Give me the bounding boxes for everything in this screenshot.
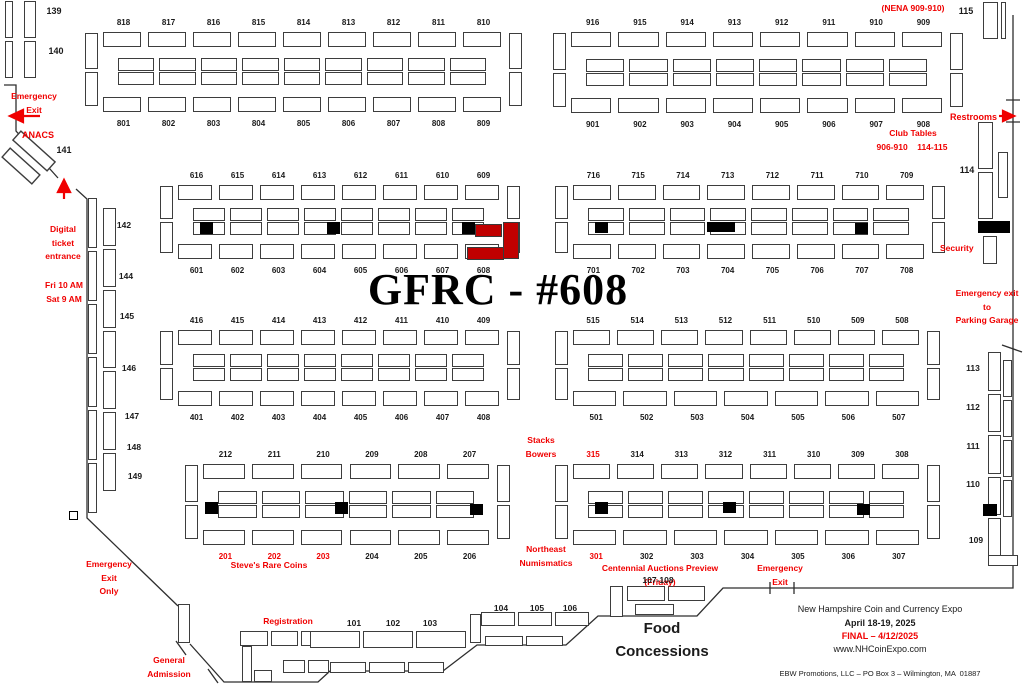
booth-rect [555, 186, 568, 219]
booth-label-610: 610 [436, 171, 449, 180]
booth-rect [408, 662, 444, 673]
booth-rect [668, 505, 703, 518]
booth-rect [829, 368, 864, 381]
booth-label-501: 501 [590, 413, 603, 422]
booth-label-614: 614 [272, 171, 285, 180]
digital-entrance-label: Digital ticket entrance [34, 223, 92, 264]
booth-rect [629, 222, 665, 235]
booth-rect [178, 391, 212, 406]
emergency-exit-left: Emergency Exit [6, 90, 62, 117]
booth-rect [447, 464, 489, 479]
booth-label-511: 511 [763, 316, 776, 325]
booth-rect [670, 222, 706, 235]
booth-label-913: 913 [728, 18, 741, 27]
booth-label-410: 410 [436, 316, 449, 325]
booth-rect [855, 98, 895, 113]
booth-rect [749, 368, 784, 381]
parking-exit-label: Emergency exit to Parking Garage [948, 287, 1026, 328]
booth-rect [160, 368, 173, 400]
label-112: 112 [961, 401, 985, 415]
label-101: 101 [340, 617, 368, 631]
steves-rare-coins-label: Steve's Rare Coins [222, 559, 316, 573]
booth-rect [301, 464, 343, 479]
label-148: 148 [122, 441, 146, 455]
booth-rect [807, 98, 847, 113]
booth-rect [829, 354, 864, 367]
pillar-block [327, 222, 340, 234]
booth-rect [794, 330, 831, 345]
booth-rect [724, 530, 767, 545]
booth-rect [902, 98, 942, 113]
booth-rect [869, 491, 904, 504]
booth-rect [1003, 360, 1012, 397]
booth-label-810: 810 [477, 18, 490, 27]
booth-label-514: 514 [631, 316, 644, 325]
booth-rect [555, 465, 568, 502]
booth-rect [392, 505, 431, 518]
booth-label-411: 411 [395, 316, 408, 325]
booth-label-407: 407 [436, 413, 449, 422]
booth-rect [588, 208, 624, 221]
booth-rect [635, 604, 674, 615]
booth-rect [573, 391, 616, 406]
booth-label-809: 809 [477, 119, 490, 128]
hours-label: Fri 10 AM Sat 9 AM [36, 279, 92, 306]
booth-rect [219, 391, 253, 406]
label-139: 139 [40, 4, 68, 18]
booth-rect [573, 330, 610, 345]
label-109: 109 [964, 534, 988, 548]
booth-rect [628, 368, 663, 381]
island-400: 4164154144134124114104094014024034044054… [160, 328, 520, 408]
booth-label-616: 616 [190, 171, 203, 180]
booth-rect [463, 97, 501, 112]
booth-rect [301, 530, 343, 545]
booth-rect [341, 222, 373, 235]
booth-rect [308, 660, 330, 673]
club-tables-label: Club Tables [868, 127, 958, 141]
highlighted-booth-608 [503, 222, 519, 259]
booth-rect [882, 464, 919, 479]
booth-rect [301, 330, 335, 345]
island-300: 3153143133123113103093083013023033043053… [555, 462, 940, 547]
booth-label-710: 710 [855, 171, 868, 180]
island-200: 212211210209208207201202203204205206 [185, 462, 510, 547]
booth-label-212: 212 [219, 450, 232, 459]
club-tables-numbers: 906-910 114-115 [860, 141, 964, 155]
booth-rect [716, 73, 754, 86]
booth-label-910: 910 [869, 18, 882, 27]
booth-rect [88, 357, 97, 407]
booth-rect [193, 97, 231, 112]
booth-label-814: 814 [297, 18, 310, 27]
label-105: 105 [523, 602, 551, 616]
booth-rect [829, 491, 864, 504]
booth-rect [88, 410, 97, 460]
booth-rect [586, 73, 624, 86]
booth-rect [668, 491, 703, 504]
booth-rect [998, 152, 1008, 198]
booth-label-713: 713 [721, 171, 734, 180]
island-700: 7167157147137127117107097017027037047057… [555, 183, 945, 261]
booth-rect [759, 59, 797, 72]
booth-label-608: 608 [477, 266, 490, 275]
booth-rect [218, 505, 257, 518]
booth-label-704: 704 [721, 266, 734, 275]
booth-label-609: 609 [477, 171, 490, 180]
booth-rect [159, 58, 195, 71]
booth-rect [88, 463, 97, 513]
booth-label-408: 408 [477, 413, 490, 422]
booth-label-806: 806 [342, 119, 355, 128]
booth-rect [588, 368, 623, 381]
booth-rect [252, 464, 294, 479]
booth-label-708: 708 [900, 266, 913, 275]
booth-rect [674, 530, 717, 545]
booth-label-309: 309 [851, 450, 864, 459]
booth-label-403: 403 [272, 413, 285, 422]
booth-rect [983, 504, 997, 516]
booth-rect [373, 32, 411, 47]
booth-rect [304, 354, 336, 367]
booth-rect [452, 368, 484, 381]
booth-rect [873, 222, 909, 235]
booth-label-304: 304 [741, 552, 754, 561]
booth-rect [342, 330, 376, 345]
booth-rect [553, 33, 566, 70]
booth-label-901: 901 [586, 120, 599, 129]
booth-rect [230, 354, 262, 367]
booth-rect [349, 505, 388, 518]
booth-rect [666, 98, 706, 113]
booth-label-209: 209 [365, 450, 378, 459]
label-149: 149 [123, 470, 147, 484]
booth-rect [825, 530, 868, 545]
booth-rect [670, 208, 706, 221]
booth-rect [260, 330, 294, 345]
booth-label-818: 818 [117, 18, 130, 27]
booth-rect [201, 58, 237, 71]
booth-rect [526, 636, 564, 646]
booth-rect [889, 73, 927, 86]
label-142: 142 [112, 219, 136, 233]
booth-rect [260, 391, 294, 406]
booth-rect [789, 368, 824, 381]
booth-rect [424, 244, 458, 259]
booth-label-812: 812 [387, 18, 400, 27]
booth-rect [618, 32, 658, 47]
pillar-block [200, 222, 213, 234]
booth-label-315: 315 [586, 450, 599, 459]
booth-label-816: 816 [207, 18, 220, 27]
booth-rect [797, 244, 835, 259]
booth-rect [262, 505, 301, 518]
booth-rect [424, 330, 458, 345]
booth-label-203: 203 [316, 552, 329, 561]
booth-rect [193, 32, 231, 47]
booth-label-409: 409 [477, 316, 490, 325]
booth-rect [465, 185, 499, 200]
booth-rect [749, 505, 784, 518]
booth-rect [5, 1, 13, 38]
booth-rect [507, 331, 520, 365]
booth-rect [775, 530, 818, 545]
booth-rect [775, 391, 818, 406]
booth-rect [304, 208, 336, 221]
highlighted-booth-608 [475, 224, 502, 237]
security-label: Security [940, 242, 984, 256]
general-admission-label: General Admission [142, 654, 196, 681]
booth-rect [88, 304, 97, 354]
booth-rect [792, 208, 828, 221]
booth-rect [902, 32, 942, 47]
booth-rect [713, 32, 753, 47]
booth-rect [24, 41, 36, 78]
booth-label-508: 508 [895, 316, 908, 325]
booth-rect [629, 208, 665, 221]
booth-label-301: 301 [590, 552, 603, 561]
booth-rect [436, 491, 475, 504]
booth-rect [193, 208, 225, 221]
booth-rect [792, 222, 828, 235]
booth-rect [342, 391, 376, 406]
booth-rect [838, 330, 875, 345]
booth-rect [628, 491, 663, 504]
booth-rect [751, 208, 787, 221]
booth-rect [794, 464, 831, 479]
booth-rect [350, 464, 392, 479]
booth-label-401: 401 [190, 413, 203, 422]
emergency-exit-bottom: Emergency Exit [754, 562, 806, 589]
booth-label-904: 904 [728, 120, 741, 129]
booth-rect [750, 464, 787, 479]
booth-rect [789, 354, 824, 367]
booth-rect [668, 354, 703, 367]
booth-label-307: 307 [892, 552, 905, 561]
booth-label-801: 801 [117, 119, 130, 128]
booth-rect [267, 208, 299, 221]
nena-label: (NENA 909-910) [868, 2, 958, 16]
booth-rect [330, 662, 366, 673]
label-146: 146 [117, 362, 141, 376]
booth-rect [415, 354, 447, 367]
booth-rect [203, 530, 245, 545]
booth-label-802: 802 [162, 119, 175, 128]
booth-label-813: 813 [342, 18, 355, 27]
booth-rect [789, 505, 824, 518]
booth-rect [238, 97, 276, 112]
booth-rect [85, 33, 98, 69]
booth-rect [178, 244, 212, 259]
pillar-block [595, 502, 608, 514]
booth-rect [383, 185, 417, 200]
booth-rect [927, 368, 940, 400]
booth-rect [886, 244, 924, 259]
booth-rect [759, 73, 797, 86]
booth-label-701: 701 [587, 266, 600, 275]
pillar-block [462, 222, 475, 234]
booth-rect [1003, 400, 1012, 437]
booth-rect [416, 631, 466, 648]
booth-rect [950, 33, 963, 70]
booth-rect [415, 208, 447, 221]
booth-rect [148, 32, 186, 47]
booth-rect [369, 662, 405, 673]
booth-label-909: 909 [917, 18, 930, 27]
booth-label-702: 702 [631, 266, 644, 275]
booth-rect [238, 32, 276, 47]
booth-rect [193, 354, 225, 367]
booth-rect [283, 32, 321, 47]
booth-rect [284, 58, 320, 71]
booth-rect [203, 464, 245, 479]
booth-label-507: 507 [892, 413, 905, 422]
booth-label-512: 512 [719, 316, 732, 325]
booth-label-406: 406 [395, 413, 408, 422]
booth-rect [424, 391, 458, 406]
booth-label-606: 606 [395, 266, 408, 275]
booth-label-903: 903 [680, 120, 693, 129]
booth-rect [383, 330, 417, 345]
booth-rect [408, 72, 444, 85]
booth-rect [418, 32, 456, 47]
booth-label-206: 206 [463, 552, 476, 561]
booth-label-817: 817 [162, 18, 175, 27]
booth-label-412: 412 [354, 316, 367, 325]
booth-rect [610, 586, 623, 617]
booth-label-402: 402 [231, 413, 244, 422]
booth-rect [507, 186, 520, 219]
booth-label-211: 211 [268, 450, 281, 459]
pillar-block [855, 223, 868, 234]
booth-label-314: 314 [631, 450, 644, 459]
booth-rect [450, 58, 486, 71]
booth-label-914: 914 [680, 18, 693, 27]
booth-rect [573, 244, 611, 259]
booth-rect [988, 435, 1001, 474]
expo-promoter: EBW Promotions, LLC – PO Box 3 – Wilming… [762, 668, 998, 680]
booth-rect [367, 58, 403, 71]
booth-rect [618, 244, 656, 259]
booth-rect [807, 32, 847, 47]
booth-rect [230, 222, 262, 235]
booth-label-811: 811 [432, 18, 445, 27]
booth-rect [267, 368, 299, 381]
booth-rect [617, 464, 654, 479]
pillar-block [857, 504, 870, 515]
booth-rect [160, 331, 173, 365]
booth-rect [789, 491, 824, 504]
booth-label-804: 804 [252, 119, 265, 128]
booth-rect [873, 208, 909, 221]
gfrc-highlight-title: GFRC - #608 [340, 264, 656, 315]
booth-label-404: 404 [313, 413, 326, 422]
label-106: 106 [556, 602, 584, 616]
booth-rect [301, 244, 335, 259]
pillar-block [707, 222, 735, 232]
label-113: 113 [961, 362, 985, 376]
booth-rect [283, 660, 305, 673]
booth-rect [978, 122, 993, 169]
booth-rect [802, 73, 840, 86]
island-600: 6166156146136126116106096016026036046056… [160, 183, 520, 261]
booth-rect [618, 185, 656, 200]
booth-label-513: 513 [675, 316, 688, 325]
booth-rect [103, 331, 116, 369]
booth-rect [825, 391, 868, 406]
booth-rect [103, 412, 116, 450]
booth-label-504: 504 [741, 413, 754, 422]
label-114: 114 [954, 163, 980, 177]
booth-label-615: 615 [231, 171, 244, 180]
entrance-arrowhead-icon [58, 180, 70, 192]
label-115: 115 [953, 4, 979, 18]
booth-rect [260, 185, 294, 200]
booth-rect [349, 491, 388, 504]
emergency-exit-only: Emergency Exit Only [82, 558, 136, 599]
label-145: 145 [115, 310, 139, 324]
booth-rect [118, 72, 154, 85]
booth-label-310: 310 [807, 450, 820, 459]
booth-rect [705, 330, 742, 345]
booth-rect [415, 368, 447, 381]
booth-rect [978, 172, 993, 219]
booth-label-709: 709 [900, 171, 913, 180]
booth-label-706: 706 [810, 266, 823, 275]
booth-label-313: 313 [675, 450, 688, 459]
booth-label-302: 302 [640, 552, 653, 561]
booth-label-602: 602 [231, 266, 244, 275]
booth-label-912: 912 [775, 18, 788, 27]
booth-rect [846, 59, 884, 72]
booth-rect [666, 32, 706, 47]
booth-rect [452, 354, 484, 367]
booth-rect [378, 222, 410, 235]
booth-rect [988, 518, 1001, 557]
booth-rect [418, 97, 456, 112]
booth-label-305: 305 [791, 552, 804, 561]
booth-rect [707, 185, 745, 200]
booth-rect [415, 222, 447, 235]
label-140: 140 [42, 44, 70, 58]
booth-rect [797, 185, 835, 200]
booth-label-413: 413 [313, 316, 326, 325]
booth-label-815: 815 [252, 18, 265, 27]
booth-rect [571, 98, 611, 113]
booth-rect [240, 631, 268, 646]
booth-rect [325, 72, 361, 85]
booth-label-208: 208 [414, 450, 427, 459]
booth-rect [470, 614, 481, 643]
pillar-block [470, 504, 483, 515]
booth-rect [242, 58, 278, 71]
booth-label-916: 916 [586, 18, 599, 27]
booth-label-601: 601 [190, 266, 203, 275]
booth-label-911: 911 [822, 18, 835, 27]
label-104: 104 [487, 602, 515, 616]
booth-rect [710, 208, 746, 221]
booth-label-915: 915 [633, 18, 646, 27]
food-concessions-label: Food Concessions [604, 618, 720, 663]
booth-rect [833, 208, 869, 221]
booth-rect [752, 244, 790, 259]
booth-rect [842, 244, 880, 259]
booth-rect [85, 72, 98, 106]
booth-rect [252, 530, 294, 545]
anacs-label: ANACS [14, 128, 62, 142]
booth-label-805: 805 [297, 119, 310, 128]
booth-rect [507, 368, 520, 400]
